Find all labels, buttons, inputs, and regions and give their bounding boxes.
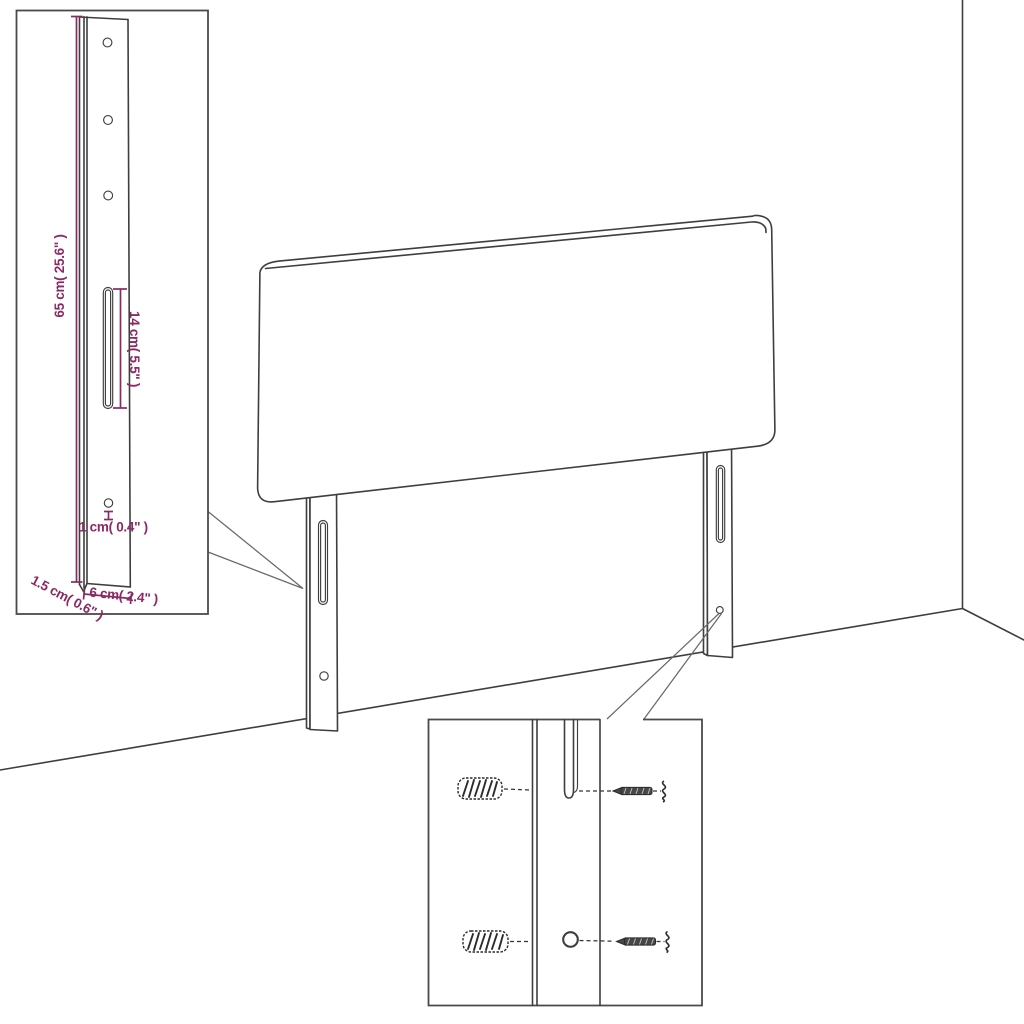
bracket-callout-lines [208, 512, 303, 589]
bracket-detail-inset: 65 cm( 25.6" ) 14 cm( 5.5" ) 1 cm( 0.4" … [17, 11, 209, 623]
right-leg-front-face [707, 437, 733, 658]
dimension-14cm-label: 14 cm( 5.5" ) [127, 311, 142, 387]
dimension-1cm-label: 1 cm( 0.4" ) [79, 520, 148, 535]
headboard-diagram: 65 cm( 25.6" ) 14 cm( 5.5" ) 1 cm( 0.4" … [0, 0, 1024, 1024]
headboard-panel [258, 215, 775, 501]
dimension-65cm-label: 65 cm( 25.6" ) [52, 234, 67, 317]
mounting-hardware-inset [429, 720, 703, 1006]
left-leg [307, 487, 338, 731]
diagram-canvas: 65 cm( 25.6" ) 14 cm( 5.5" ) 1 cm( 0.4" … [0, 0, 1024, 1024]
floor-line-right [963, 609, 1024, 641]
headboard-outline [258, 215, 775, 501]
leg-hole-icon [563, 932, 578, 947]
